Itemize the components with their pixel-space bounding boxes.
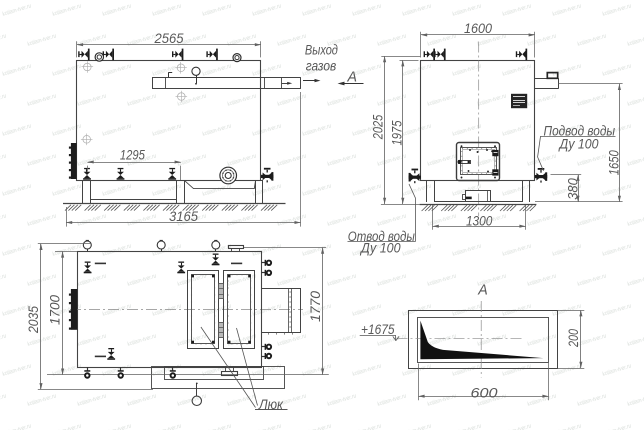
svg-text:+1675: +1675 [361,321,395,337]
svg-text:2025: 2025 [370,115,386,140]
svg-text:1295: 1295 [120,146,145,162]
svg-text:380: 380 [564,178,580,200]
svg-text:1650: 1650 [605,150,621,175]
svg-text:А: А [347,69,357,86]
svg-text:газов: газов [306,58,337,74]
svg-text:2035: 2035 [25,306,41,334]
svg-text:600: 600 [471,385,498,401]
svg-text:1975: 1975 [388,120,404,145]
svg-text:2565: 2565 [154,30,184,46]
svg-text:1770: 1770 [307,291,323,322]
svg-text:Ду 100: Ду 100 [558,135,599,151]
svg-text:1700: 1700 [46,295,62,325]
svg-text:Выход: Выход [305,42,338,58]
svg-text:3165: 3165 [169,208,198,224]
svg-text:А: А [477,281,487,298]
svg-text:1600: 1600 [464,20,492,36]
svg-text:200: 200 [565,329,581,348]
svg-text:1300: 1300 [466,213,493,229]
